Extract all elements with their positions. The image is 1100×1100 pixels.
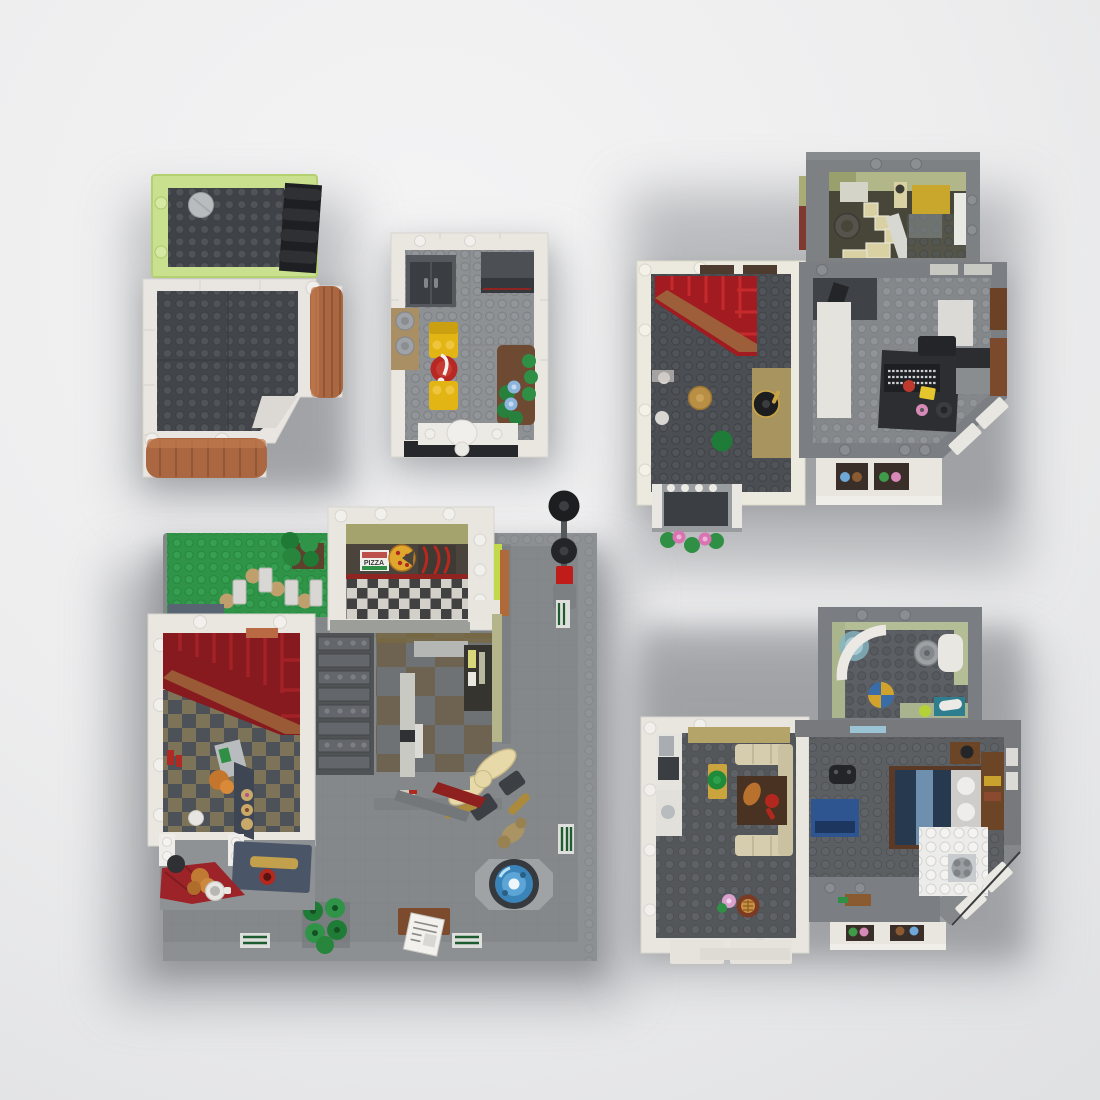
- svg-text:PIZZA: PIZZA: [364, 560, 384, 567]
